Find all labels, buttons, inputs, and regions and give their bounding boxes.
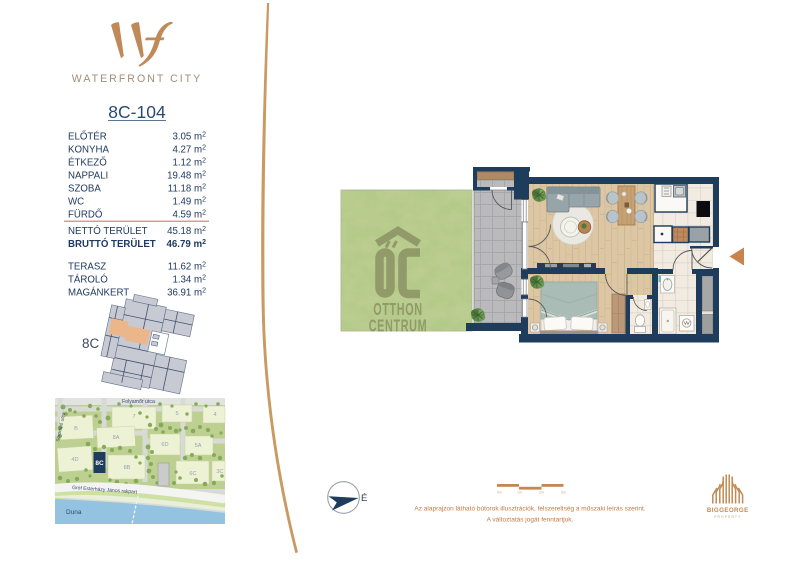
svg-text:MAGÁNKERT: MAGÁNKERT bbox=[68, 288, 129, 299]
svg-text:FÜRDŐ: FÜRDŐ bbox=[68, 210, 103, 221]
svg-text:Folyamőr utca: Folyamőr utca bbox=[122, 399, 155, 405]
svg-text:Az alaprajzon látható bútorok: Az alaprajzon látható bútorok illusztrác… bbox=[414, 506, 645, 513]
svg-text:1.34 m2: 1.34 m2 bbox=[172, 275, 206, 286]
svg-text:NETTÓ TERÜLET: NETTÓ TERÜLET bbox=[68, 226, 148, 237]
svg-text:Duna: Duna bbox=[66, 509, 82, 516]
svg-text:46.79 m2: 46.79 m2 bbox=[167, 239, 207, 250]
svg-text:36.91 m2: 36.91 m2 bbox=[167, 288, 206, 299]
svg-text:5A: 5A bbox=[195, 443, 202, 449]
svg-text:11.62 m2: 11.62 m2 bbox=[168, 262, 206, 273]
svg-text:4D: 4D bbox=[71, 457, 78, 463]
svg-text:4.59 m2: 4.59 m2 bbox=[172, 210, 206, 221]
svg-text:11.18 m2: 11.18 m2 bbox=[168, 184, 206, 195]
svg-text:6C: 6C bbox=[189, 471, 196, 477]
svg-text:4: 4 bbox=[213, 412, 216, 418]
svg-text:TERASZ: TERASZ bbox=[68, 262, 106, 273]
svg-text:8C: 8C bbox=[95, 460, 104, 467]
svg-text:8A: 8A bbox=[113, 435, 120, 441]
svg-text:WC: WC bbox=[68, 197, 84, 208]
svg-text:2m: 2m bbox=[539, 491, 544, 495]
svg-text:1m: 1m bbox=[517, 491, 522, 495]
svg-text:A változtatás jogát fenntartju: A változtatás jogát fenntartjuk. bbox=[487, 517, 574, 524]
svg-text:4.27 m2: 4.27 m2 bbox=[172, 145, 206, 156]
svg-text:KONYHA: KONYHA bbox=[68, 145, 109, 156]
svg-text:SZOBA: SZOBA bbox=[68, 184, 101, 195]
svg-text:ELŐTÉR: ELŐTÉR bbox=[68, 132, 107, 143]
svg-text:5: 5 bbox=[175, 411, 178, 417]
svg-text:19.48 m2: 19.48 m2 bbox=[167, 171, 206, 182]
svg-text:8B: 8B bbox=[124, 465, 131, 471]
svg-text:ÉTKEZŐ: ÉTKEZŐ bbox=[68, 158, 107, 169]
svg-text:3C: 3C bbox=[216, 469, 223, 475]
svg-text:7: 7 bbox=[132, 414, 135, 420]
svg-text:0m: 0m bbox=[497, 491, 502, 495]
svg-text:NAPPALI: NAPPALI bbox=[68, 171, 108, 182]
svg-text:1.49 m2: 1.49 m2 bbox=[172, 197, 206, 208]
svg-text:CENTRUM: CENTRUM bbox=[369, 317, 428, 336]
svg-text:TÁROLÓ: TÁROLÓ bbox=[68, 275, 108, 286]
svg-text:1.12 m2: 1.12 m2 bbox=[172, 158, 206, 169]
svg-text:3m: 3m bbox=[561, 491, 566, 495]
svg-text:BIGGEORGE: BIGGEORGE bbox=[707, 507, 749, 514]
svg-text:8C: 8C bbox=[82, 336, 100, 351]
svg-text:PROPERTY: PROPERTY bbox=[714, 515, 741, 519]
svg-text:6D: 6D bbox=[161, 442, 168, 448]
svg-text:45.18 m2: 45.18 m2 bbox=[167, 226, 206, 237]
svg-text:8C-104: 8C-104 bbox=[108, 102, 166, 122]
svg-text:WATERFRONT CITY: WATERFRONT CITY bbox=[72, 73, 202, 85]
svg-text:É: É bbox=[361, 493, 367, 504]
svg-text:BRUTTÓ TERÜLET: BRUTTÓ TERÜLET bbox=[68, 238, 156, 250]
svg-text:3.05 m2: 3.05 m2 bbox=[172, 132, 206, 143]
svg-text:B: B bbox=[74, 426, 78, 432]
